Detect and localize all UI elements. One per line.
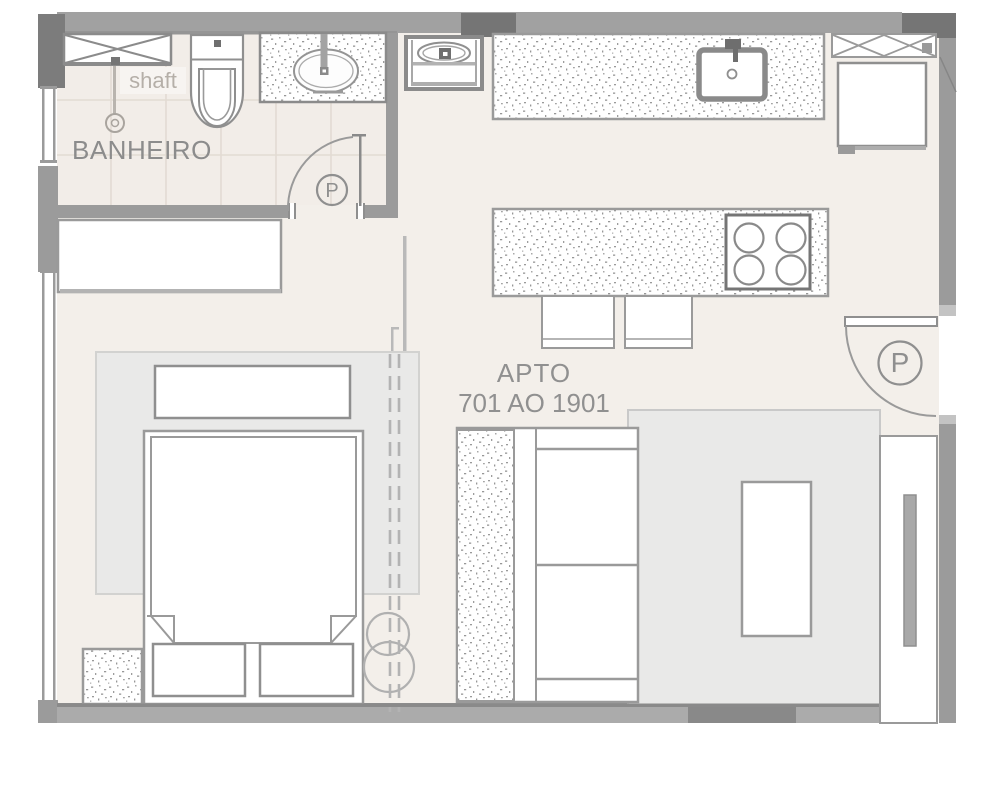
svg-text:shaft: shaft [129, 68, 177, 93]
svg-text:BANHEIRO: BANHEIRO [72, 135, 212, 165]
svg-text:APTO: APTO [497, 358, 571, 388]
svg-text:701 AO 1901: 701 AO 1901 [458, 388, 610, 418]
svg-text:P: P [325, 180, 338, 202]
svg-text:P: P [891, 347, 910, 378]
